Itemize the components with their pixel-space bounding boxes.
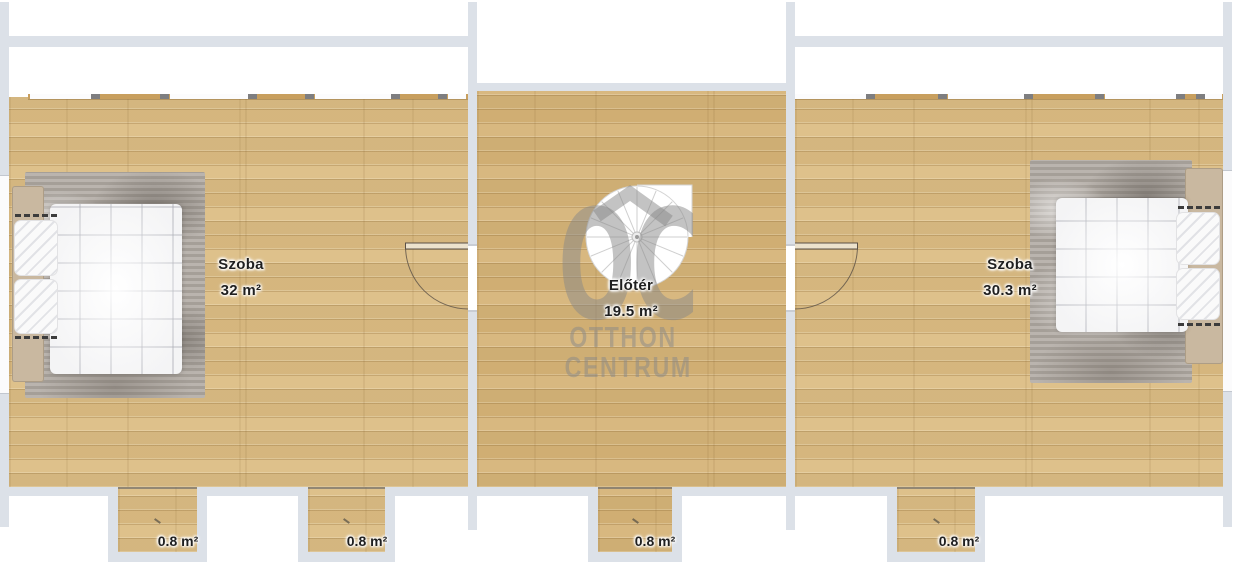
room-area: 30.3 m² bbox=[940, 278, 1080, 304]
alcove-area-label: 0.8 m² bbox=[904, 533, 1014, 549]
room-name: Szoba bbox=[940, 252, 1080, 278]
alcove-area-label: 0.8 m² bbox=[600, 533, 710, 549]
room-label-left: Szoba 32 m² bbox=[171, 252, 311, 304]
room-name: Előtér bbox=[561, 273, 701, 299]
room-label-center: Előtér 19.5 m² bbox=[561, 273, 701, 325]
alcove-area-label: 0.8 m² bbox=[312, 533, 422, 549]
room-area: 32 m² bbox=[171, 278, 311, 304]
room-area: 19.5 m² bbox=[561, 299, 701, 325]
room-label-right: Szoba 30.3 m² bbox=[940, 252, 1080, 304]
alcove-area-label: 0.8 m² bbox=[123, 533, 233, 549]
room-name: Szoba bbox=[171, 252, 311, 278]
floor-plan: 0.8 m² 0.8 m² 0.8 m² 0.8 m² OC OTTHON CE… bbox=[0, 0, 1243, 571]
